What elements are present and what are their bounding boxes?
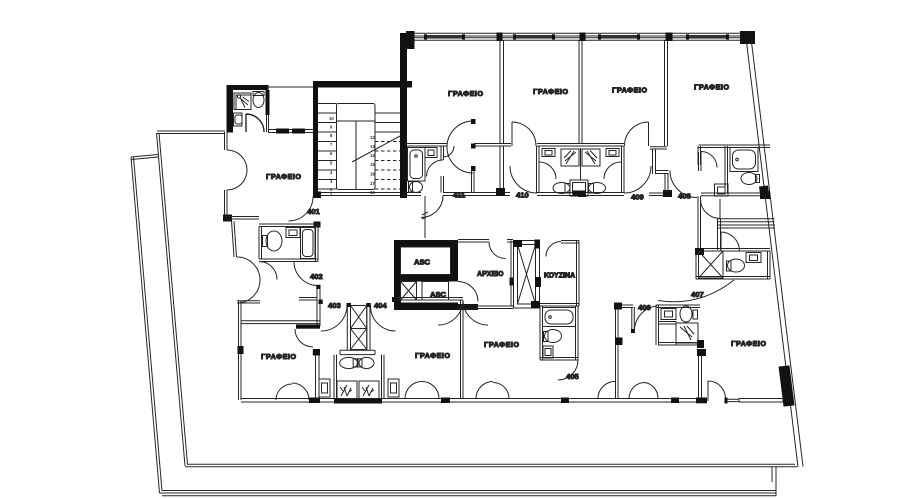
svg-text:18: 18 [370, 190, 375, 195]
svg-text:ΚΟΥΖΙΝΑ: ΚΟΥΖΙΝΑ [544, 273, 575, 280]
svg-text:402: 402 [310, 272, 323, 281]
svg-text:13: 13 [370, 144, 375, 149]
svg-text:ASC: ASC [414, 258, 431, 267]
svg-text:8: 8 [330, 133, 333, 138]
svg-text:401: 401 [307, 207, 320, 216]
svg-text:9: 9 [330, 125, 333, 130]
svg-text:411: 411 [453, 191, 466, 200]
svg-text:ΓΡΑΦΕΙΟ: ΓΡΑΦΕΙΟ [266, 172, 302, 181]
svg-text:ΓΡΑΦΕΙΟ: ΓΡΑΦΕΙΟ [612, 86, 648, 95]
svg-text:10: 10 [329, 116, 334, 121]
svg-text:ΓΡΑΦΕΙΟ: ΓΡΑΦΕΙΟ [484, 340, 520, 349]
svg-text:14: 14 [370, 153, 375, 158]
svg-text:408: 408 [678, 192, 691, 201]
svg-text:409: 409 [631, 193, 644, 202]
svg-text:6: 6 [330, 151, 333, 156]
svg-text:ΓΡΑΦΕΙΟ: ΓΡΑΦΕΙΟ [533, 87, 569, 96]
svg-text:4: 4 [330, 170, 333, 175]
svg-text:ΑΡΧΕΙΟ: ΑΡΧΕΙΟ [477, 271, 504, 278]
svg-text:17: 17 [370, 181, 375, 186]
svg-text:ΓΡΑΦΕΙΟ: ΓΡΑΦΕΙΟ [261, 352, 297, 361]
svg-text:5: 5 [330, 161, 333, 166]
svg-text:15: 15 [370, 162, 375, 167]
svg-text:ΓΡΑΦΕΙΟ: ΓΡΑΦΕΙΟ [731, 339, 767, 348]
svg-text:ΓΡΑΦΕΙΟ: ΓΡΑΦΕΙΟ [448, 89, 484, 98]
svg-text:7: 7 [330, 142, 333, 147]
svg-text:403: 403 [328, 301, 341, 310]
svg-text:12: 12 [370, 135, 375, 140]
svg-text:16: 16 [370, 172, 375, 177]
svg-text:410: 410 [516, 191, 529, 200]
svg-text:ΓΡΑΦΕΙΟ: ΓΡΑΦΕΙΟ [694, 83, 730, 92]
svg-text:404: 404 [374, 301, 387, 310]
svg-text:ΓΡΑΦΕΙΟ: ΓΡΑΦΕΙΟ [415, 351, 451, 360]
